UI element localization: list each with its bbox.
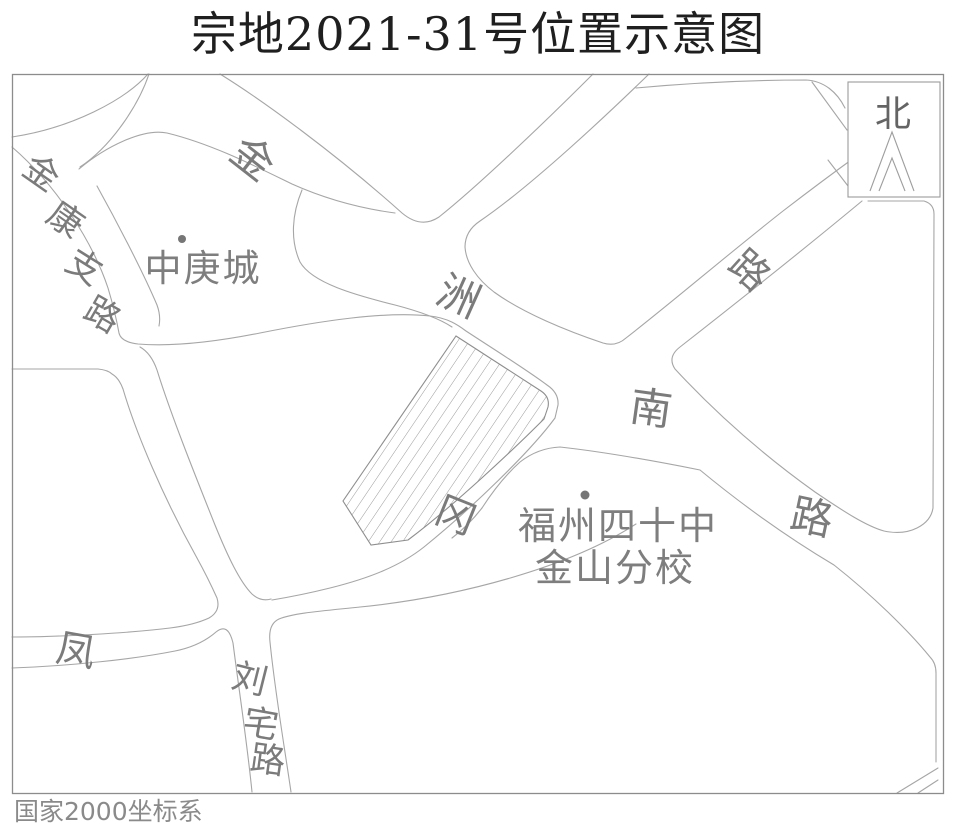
place-label: 中庚城	[145, 247, 262, 290]
road-char: 凤	[53, 626, 99, 677]
road-char: 南	[627, 381, 675, 435]
coordinate-system-note: 国家2000坐标系	[14, 797, 203, 826]
map-canvas: 宗地2021-31号位置示意图	[0, 0, 960, 839]
page-title: 宗地2021-31号位置示意图	[191, 7, 765, 61]
place-label-line2: 金山分校	[535, 546, 695, 590]
place-dot	[581, 491, 590, 500]
parcel-location-map-page: 宗地2021-31号位置示意图	[0, 0, 960, 839]
north-arrow-box: 北	[848, 82, 940, 197]
north-label: 北	[875, 94, 911, 135]
place-school: 福州四十中 金山分校	[518, 491, 718, 591]
road-char: 路	[248, 739, 288, 783]
place-label-line1: 福州四十中	[518, 504, 718, 548]
place-dot	[178, 235, 186, 243]
